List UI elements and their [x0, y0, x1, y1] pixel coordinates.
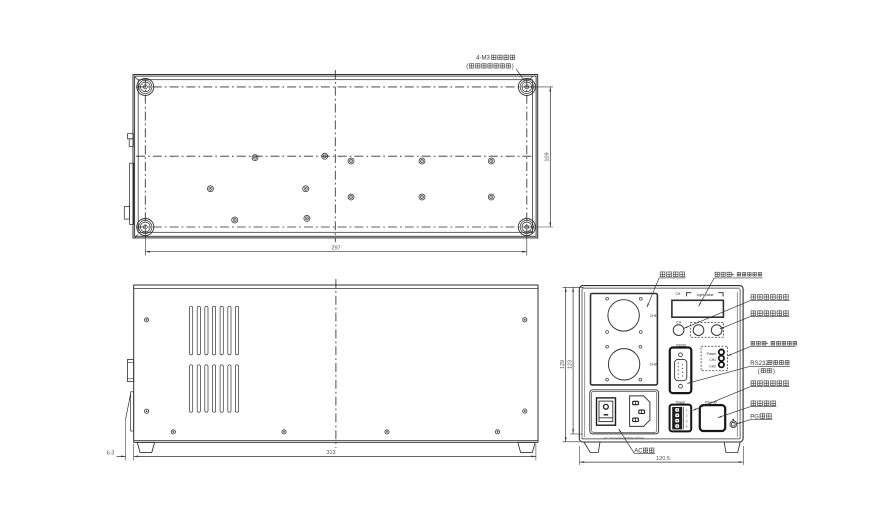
svg-text:109: 109: [544, 152, 550, 161]
svg-text:297: 297: [331, 245, 340, 251]
svg-text:+: +: [697, 320, 699, 324]
svg-text:(: (: [758, 369, 760, 375]
svg-text:Power: Power: [707, 352, 717, 356]
svg-text:CH: CH: [676, 320, 681, 324]
svg-text:CH1: CH1: [709, 358, 716, 362]
svg-text:4-M3: 4-M3: [476, 55, 490, 61]
svg-text:(: (: [466, 64, 468, 70]
svg-text:CH1: CH1: [650, 314, 657, 318]
svg-text:CH2: CH2: [709, 365, 716, 369]
svg-text:123: 123: [567, 360, 573, 369]
svg-text:120.5: 120.5: [656, 456, 670, 462]
svg-text:): ): [512, 64, 514, 70]
svg-text:CH2: CH2: [650, 363, 657, 367]
svg-text:129: 129: [560, 360, 566, 369]
svg-text:): ): [773, 369, 775, 375]
svg-text:+: +: [731, 272, 734, 278]
svg-text:CH: CH: [675, 292, 680, 296]
svg-text:313: 313: [327, 450, 336, 456]
svg-text:6.3: 6.3: [107, 451, 115, 457]
